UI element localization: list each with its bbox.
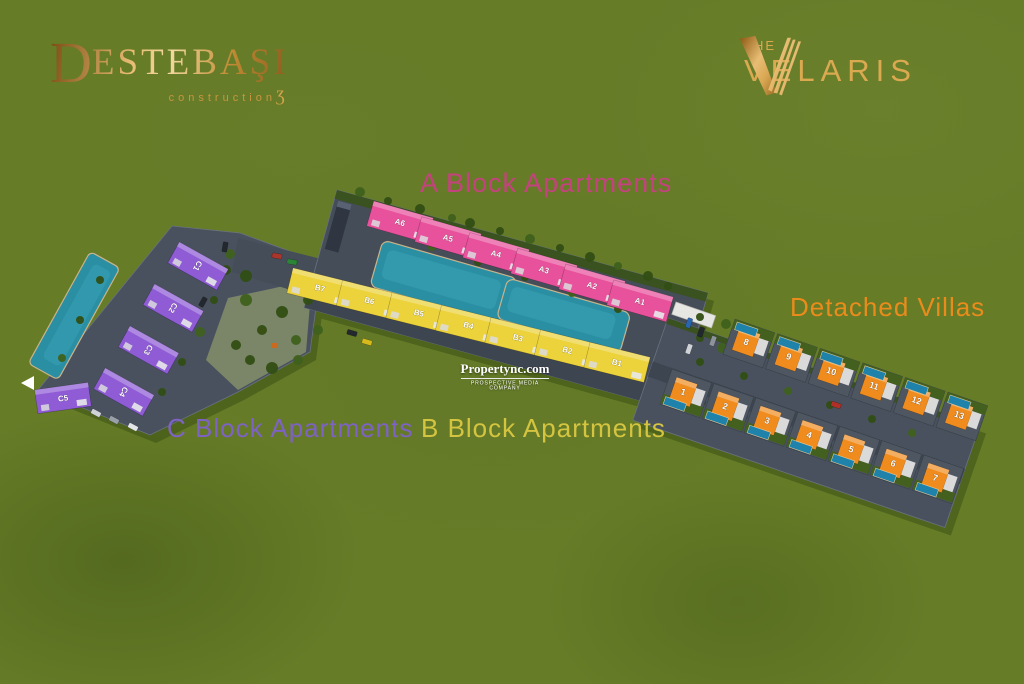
tree-icon — [465, 218, 475, 228]
building-label: C5 — [57, 393, 69, 403]
tree-icon — [210, 296, 218, 304]
tree-icon — [614, 262, 622, 270]
developer-logo: DESTEBAŞI constructionƷ — [50, 34, 289, 106]
entrance-arrow — [21, 376, 34, 390]
tree-icon — [245, 355, 255, 365]
block-b-label: B Block Apartments — [421, 413, 666, 444]
tree-icon — [415, 204, 425, 214]
tree-icon — [740, 372, 748, 380]
tree-icon — [868, 415, 876, 423]
tree-icon — [313, 325, 323, 335]
tree-icon — [643, 271, 653, 281]
tree-icon — [96, 276, 104, 284]
tree-icon — [76, 316, 84, 324]
car-icon — [362, 338, 373, 346]
tree-icon — [240, 294, 252, 306]
tree-icon — [231, 340, 241, 350]
site-plan-render: A6A5A4A3A2A1B7B6B5B4B3B2B1C1C2C3C4C58910… — [0, 0, 1024, 684]
tree-icon — [293, 355, 303, 365]
tree-icon — [448, 214, 456, 222]
tree-icon — [195, 327, 205, 337]
playground-equipment — [272, 343, 278, 348]
tree-icon — [240, 270, 252, 282]
tree-icon — [257, 325, 267, 335]
tree-icon — [664, 282, 672, 290]
tree-icon — [355, 187, 365, 197]
tagline-swoosh: Ʒ — [276, 88, 285, 105]
tree-icon — [696, 313, 704, 321]
project-logo: THE VELARIS — [738, 34, 917, 86]
tree-icon — [496, 227, 504, 235]
watermark-title: Propertync.com — [461, 361, 550, 379]
tree-icon — [276, 306, 288, 318]
tree-icon — [525, 234, 535, 244]
block-a-label: A Block Apartments — [420, 168, 672, 199]
tree-icon — [384, 197, 392, 205]
tree-icon — [178, 358, 186, 366]
tree-icon — [585, 252, 595, 262]
tree-icon — [266, 362, 278, 374]
watermark-subtitle: PROSPECTIVE MEDIA COMPANY — [456, 381, 555, 391]
car-icon — [347, 329, 358, 337]
tree-icon — [721, 319, 731, 329]
developer-logo-initial: D — [50, 30, 92, 95]
block-c-label: C Block Apartments — [167, 413, 413, 444]
tree-icon — [908, 429, 916, 437]
developer-wordmark: DESTEBAŞI — [50, 34, 289, 92]
tree-icon — [291, 335, 301, 345]
tree-icon — [58, 354, 66, 362]
watermark: Propertync.com PROSPECTIVE MEDIA COMPANY — [447, 360, 563, 392]
velaris-v-icon — [738, 34, 802, 100]
tree-icon — [556, 244, 564, 252]
tree-icon — [784, 387, 792, 395]
developer-logo-rest: ESTEBAŞI — [92, 42, 289, 83]
tree-icon — [158, 388, 166, 396]
tree-icon — [696, 358, 704, 366]
detached-villas-label: Detached Villas — [790, 292, 985, 323]
